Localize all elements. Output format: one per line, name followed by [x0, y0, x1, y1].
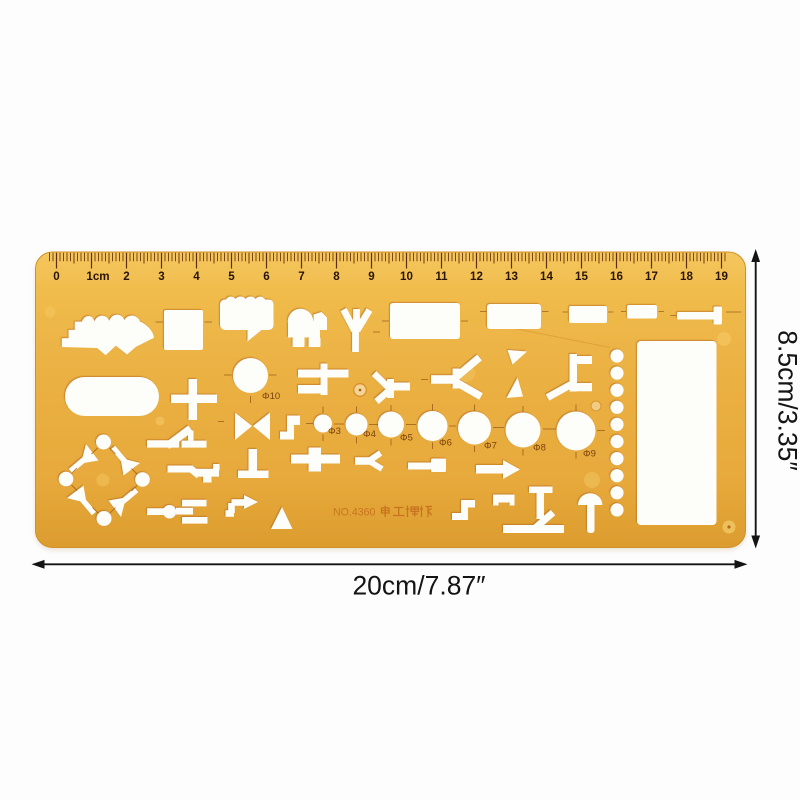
svg-text:Φ10: Φ10 — [262, 391, 280, 402]
svg-text:8.5cm/3.35″: 8.5cm/3.35″ — [773, 330, 800, 470]
svg-text:12: 12 — [470, 270, 483, 283]
svg-text:NO.4360: NO.4360 — [333, 507, 376, 519]
svg-text:Φ9: Φ9 — [583, 449, 596, 460]
svg-text:19: 19 — [715, 270, 728, 283]
svg-text:Φ7: Φ7 — [484, 441, 497, 452]
svg-text:17: 17 — [645, 270, 658, 283]
svg-text:3: 3 — [158, 270, 165, 283]
svg-text:Φ4: Φ4 — [363, 429, 376, 440]
svg-text:Φ6: Φ6 — [439, 438, 452, 449]
svg-text:Φ3: Φ3 — [328, 426, 341, 437]
svg-text:7: 7 — [298, 270, 304, 283]
svg-text:Φ8: Φ8 — [533, 443, 546, 454]
svg-text:5: 5 — [228, 270, 235, 283]
svg-text:18: 18 — [680, 270, 693, 283]
svg-text:4: 4 — [193, 270, 200, 283]
svg-text:1cm: 1cm — [86, 270, 109, 283]
svg-text:14: 14 — [540, 270, 553, 283]
svg-text:20cm/7.87″: 20cm/7.87″ — [352, 571, 485, 601]
svg-text:0: 0 — [53, 270, 59, 283]
svg-text:8: 8 — [333, 270, 340, 283]
svg-text:13: 13 — [505, 270, 518, 283]
svg-text:11: 11 — [435, 270, 448, 283]
svg-text:Φ5: Φ5 — [400, 433, 413, 444]
svg-text:10: 10 — [400, 270, 413, 283]
svg-text:16: 16 — [610, 270, 623, 283]
svg-text:6: 6 — [263, 270, 270, 283]
svg-text:2: 2 — [123, 270, 129, 283]
svg-text:9: 9 — [368, 270, 375, 283]
svg-text:15: 15 — [575, 270, 588, 283]
